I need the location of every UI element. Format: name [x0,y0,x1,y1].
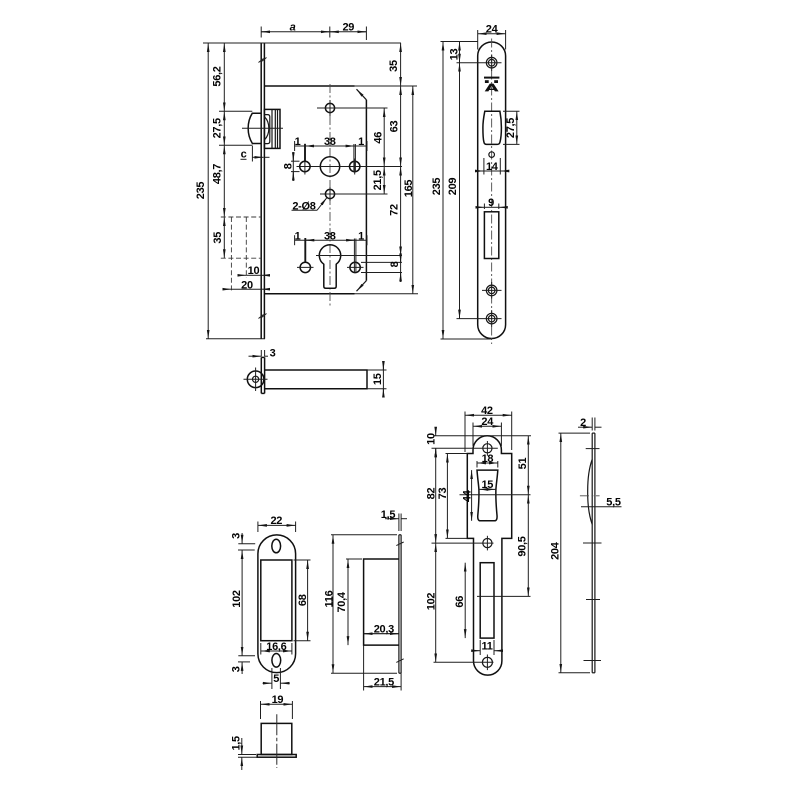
svg-text:1,5: 1,5 [381,509,396,521]
svg-text:5: 5 [273,673,279,685]
svg-text:21,5: 21,5 [372,170,384,190]
svg-text:27,5: 27,5 [505,118,517,138]
svg-text:1: 1 [358,136,364,148]
svg-text:20,3: 20,3 [374,624,394,636]
svg-text:16,6: 16,6 [266,641,286,653]
svg-text:56,2: 56,2 [212,66,224,86]
svg-text:3: 3 [230,533,242,539]
svg-text:22: 22 [270,515,282,527]
svg-text:46: 46 [372,132,384,144]
svg-text:13: 13 [448,49,460,61]
svg-text:209: 209 [447,178,459,196]
svg-text:2: 2 [580,417,586,429]
svg-text:27,5: 27,5 [212,118,224,138]
svg-text:82: 82 [425,488,437,500]
svg-text:165: 165 [403,180,415,198]
svg-text:70,4: 70,4 [336,591,348,612]
svg-text:a: a [290,22,296,34]
svg-text:29: 29 [342,22,354,34]
svg-text:3: 3 [270,348,276,360]
svg-text:44: 44 [462,489,474,502]
svg-text:35: 35 [388,60,400,72]
svg-text:66: 66 [454,596,466,608]
svg-text:18: 18 [482,453,494,465]
svg-text:3: 3 [230,666,242,672]
svg-text:102: 102 [425,593,437,611]
svg-text:35: 35 [212,232,224,244]
svg-text:21,5: 21,5 [374,677,394,689]
svg-text:15: 15 [372,373,384,385]
svg-text:5,5: 5,5 [606,497,621,509]
svg-text:8: 8 [389,261,401,267]
svg-text:68: 68 [297,594,309,606]
svg-text:1: 1 [295,230,301,242]
svg-text:51: 51 [517,458,529,470]
svg-text:72: 72 [389,204,401,216]
svg-text:102: 102 [231,590,243,608]
svg-text:11: 11 [481,641,492,653]
svg-text:9: 9 [488,197,494,209]
svg-text:116: 116 [323,590,335,607]
svg-text:1: 1 [358,230,364,242]
svg-text:204: 204 [550,541,562,560]
svg-text:235: 235 [431,178,443,196]
svg-text:c: c [241,148,247,160]
svg-text:15: 15 [481,479,493,491]
svg-text:14: 14 [486,161,499,173]
svg-text:48,7: 48,7 [212,164,224,184]
svg-text:38: 38 [324,230,336,242]
svg-text:19: 19 [272,694,284,706]
svg-text:1,5: 1,5 [231,736,243,751]
svg-text:1: 1 [295,136,301,148]
svg-text:24: 24 [481,416,494,428]
svg-text:8: 8 [283,163,295,169]
svg-text:38: 38 [324,136,336,148]
svg-text:63: 63 [389,121,401,133]
svg-text:90,5: 90,5 [517,536,529,556]
svg-text:10: 10 [248,265,260,277]
svg-text:73: 73 [437,488,449,500]
svg-text:235: 235 [195,182,207,200]
svg-text:10: 10 [425,433,437,445]
svg-text:20: 20 [241,279,253,291]
svg-text:24: 24 [486,24,499,36]
